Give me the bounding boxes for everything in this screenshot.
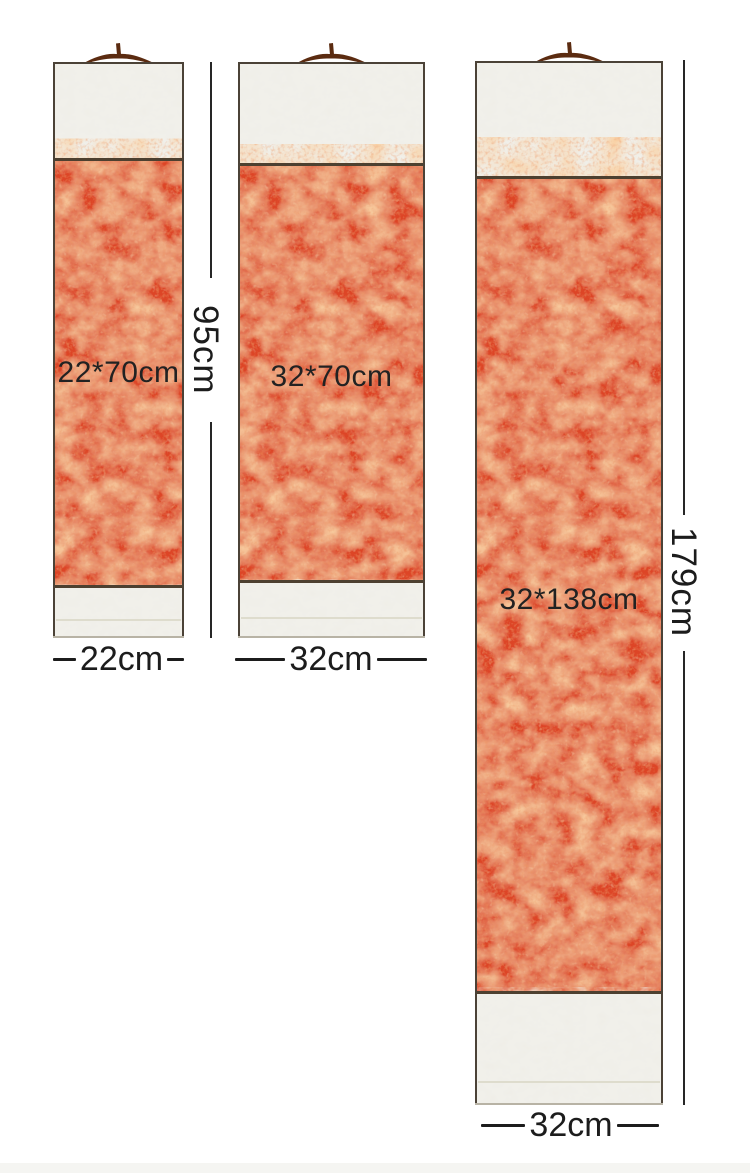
width-dimension-text: 22cm <box>80 640 163 678</box>
dimension-dash <box>235 658 285 661</box>
hanger-icon <box>289 38 373 64</box>
scroll-size-diagram: 22*70cm 32*70cm <box>0 0 750 1173</box>
dimension-dash <box>481 1124 525 1127</box>
width-dimension-text: 32cm <box>529 1106 612 1144</box>
height-dimension-line-lower <box>683 651 685 1105</box>
height-dimension-line-lower <box>210 422 212 638</box>
size-label: 32*138cm <box>475 582 663 618</box>
height-dimension-line-upper <box>210 62 212 278</box>
hanger-icon <box>527 37 611 63</box>
width-dimension-label: 22cm <box>42 640 195 678</box>
size-label: 32*70cm <box>238 359 425 395</box>
bottom-strip <box>0 1163 750 1173</box>
dimension-dash <box>53 658 76 661</box>
scroll-body <box>238 62 425 638</box>
height-dimension-line-upper <box>683 60 685 515</box>
width-dimension-label: 32cm <box>224 640 438 678</box>
height-dimension-label: 179cm <box>663 517 703 647</box>
scroll-body <box>53 62 184 638</box>
dimension-dash <box>617 1124 659 1127</box>
dimension-dash <box>377 658 427 661</box>
width-dimension-text: 32cm <box>289 640 372 678</box>
size-label: 22*70cm <box>53 355 184 391</box>
hanger-icon <box>76 38 160 64</box>
dimension-dash <box>167 658 184 661</box>
height-dimension-label: 95cm <box>185 288 225 412</box>
width-dimension-label: 32cm <box>463 1106 677 1144</box>
